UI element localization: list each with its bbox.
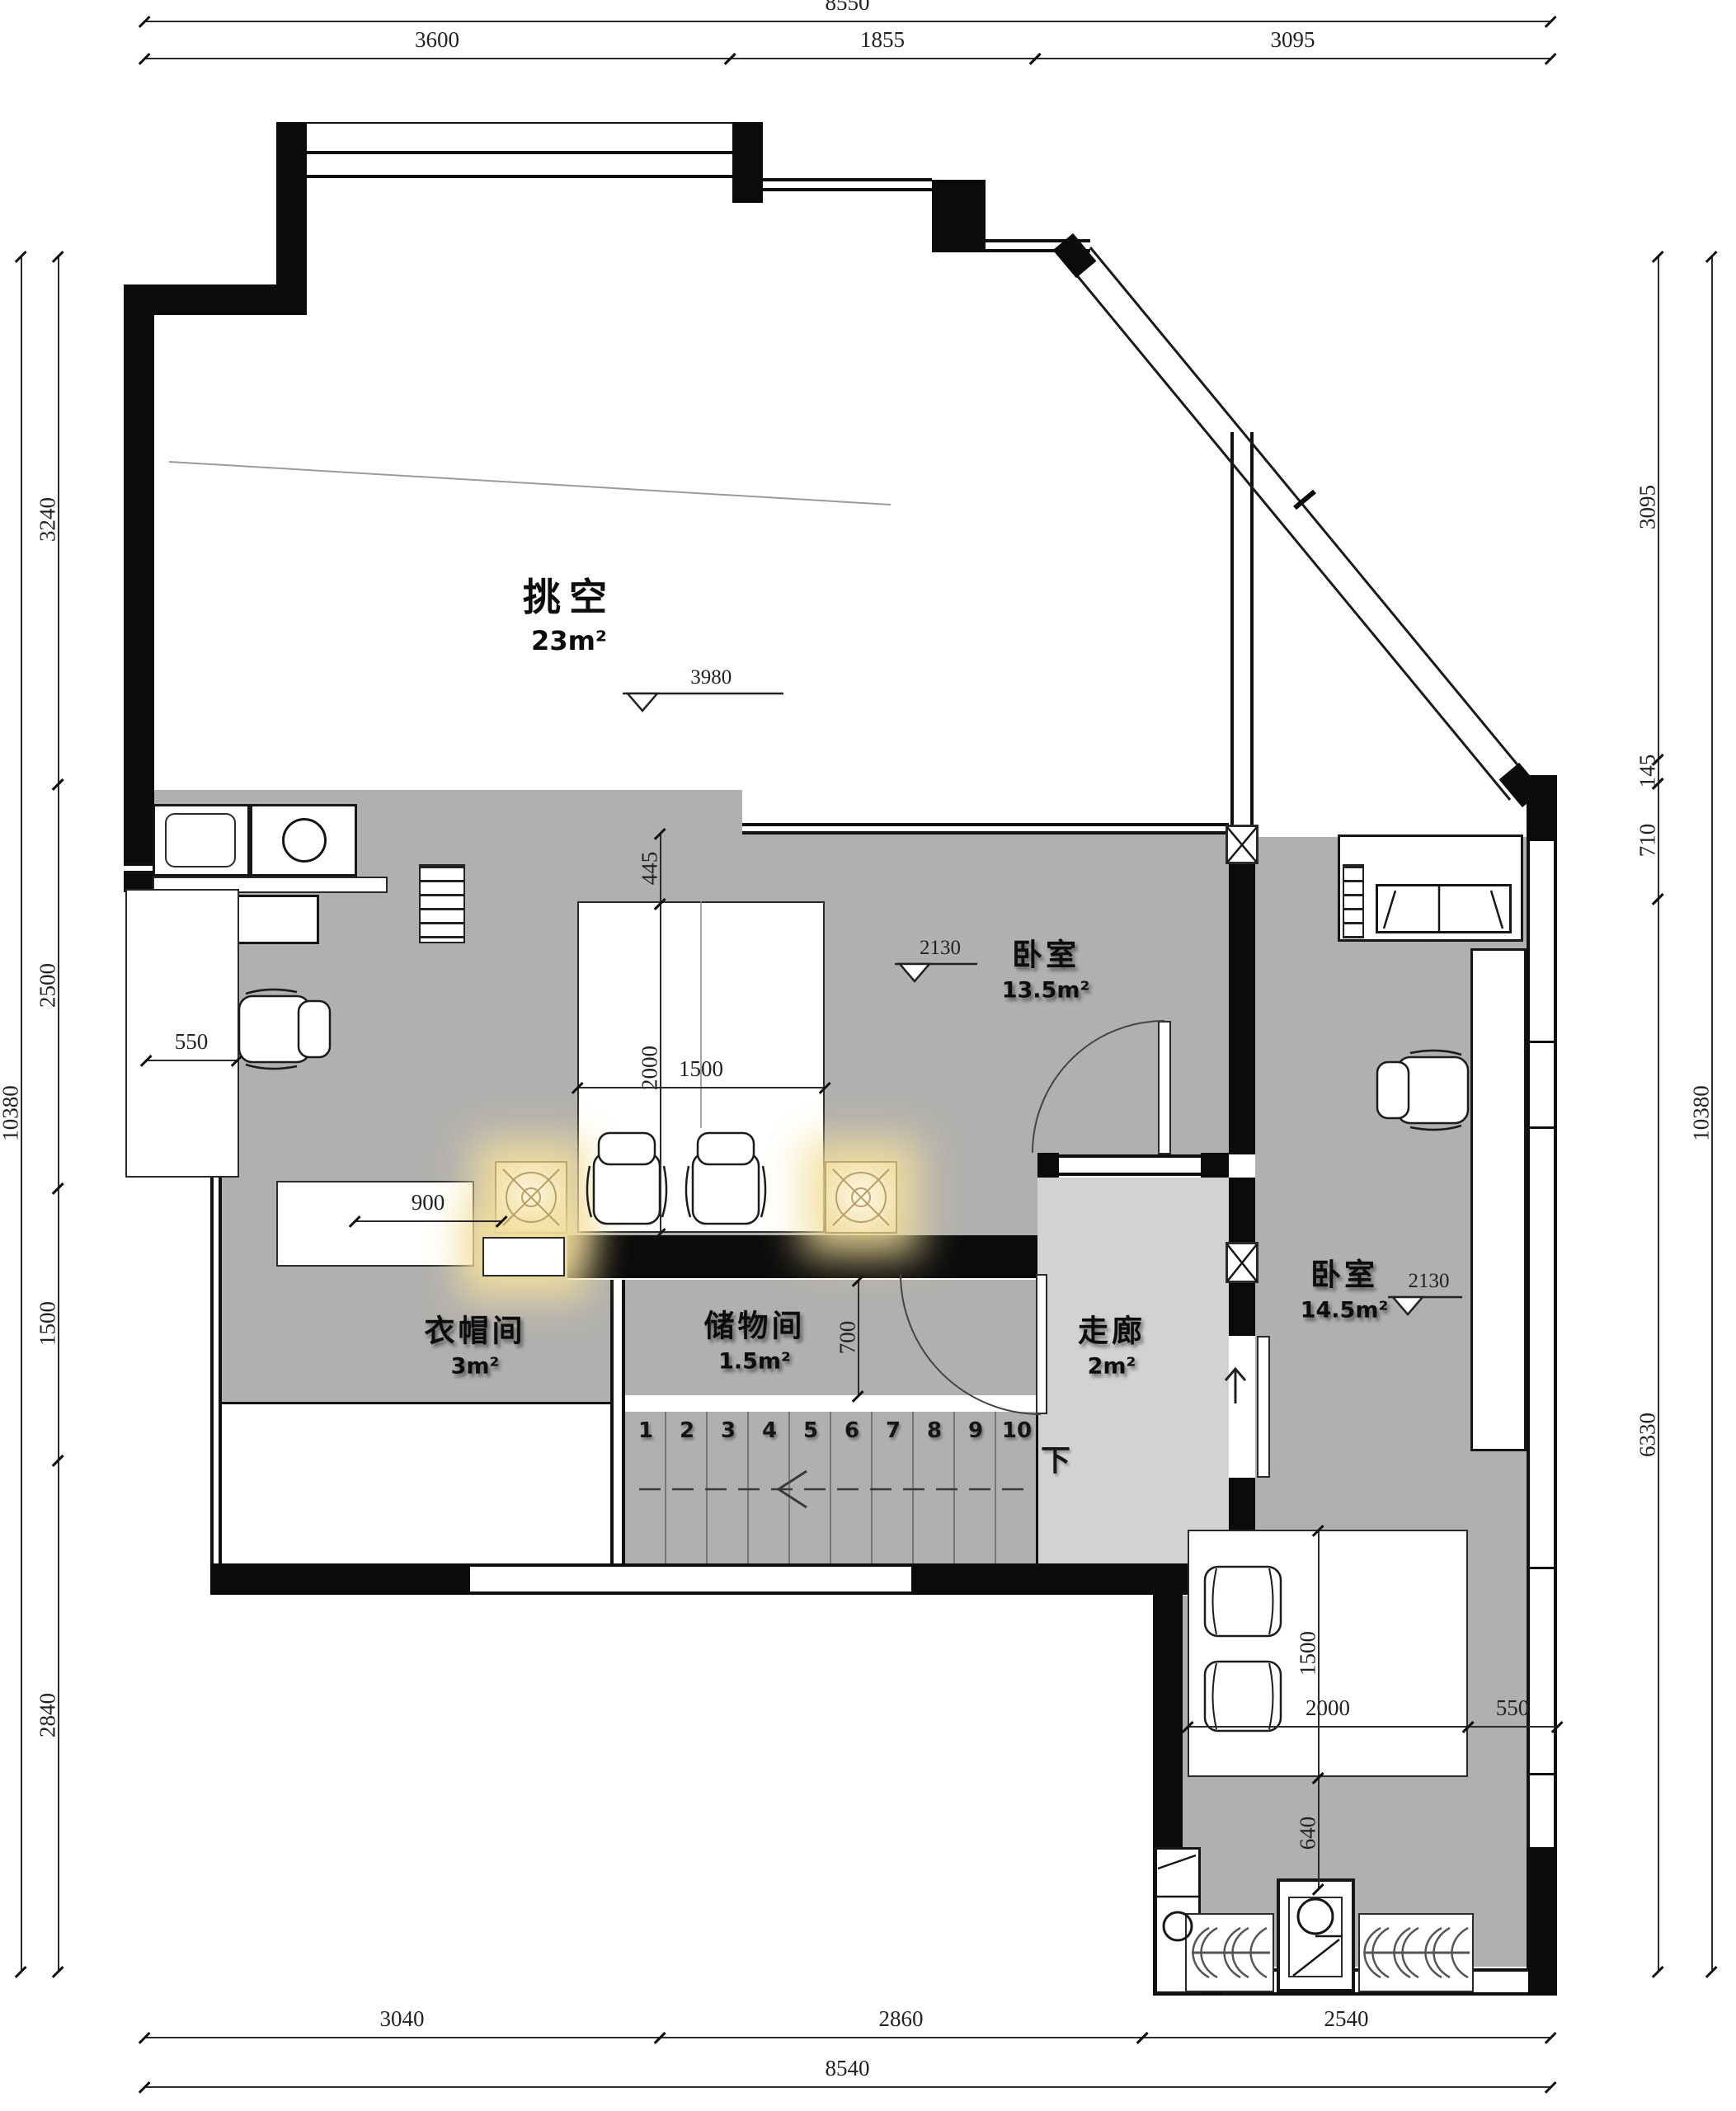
wall	[276, 124, 307, 315]
room-label: 走廊2m²	[1078, 1306, 1146, 1380]
wall	[1230, 432, 1254, 826]
column	[1226, 825, 1258, 864]
dimension-label: 640	[1296, 1816, 1321, 1850]
stair-number: 3	[721, 1418, 736, 1443]
ceiling-light	[825, 1161, 897, 1234]
dimension-line	[1188, 1726, 1468, 1728]
elevation-value: 2130	[920, 937, 961, 960]
nightstand	[482, 1237, 565, 1276]
dresser-inner	[1288, 1897, 1343, 1977]
room-label: 挑空23m²	[523, 567, 615, 656]
door-leaf	[1158, 1021, 1171, 1154]
dimension-line	[144, 2037, 660, 2038]
window-mullion	[1527, 1773, 1557, 1775]
bay-window	[307, 175, 732, 178]
ceiling-light	[495, 1161, 567, 1234]
wall	[1201, 1153, 1229, 1178]
elevation-marker: 2130	[1388, 1272, 1462, 1318]
room-label: 储物间1.5m²	[704, 1301, 806, 1375]
stair-number: 1	[638, 1418, 653, 1443]
elevation-marker: 3980	[623, 668, 783, 714]
dimension-label: 2540	[1324, 2006, 1369, 2032]
cabinet	[237, 895, 319, 944]
window-mullion	[1527, 1041, 1557, 1043]
dimension-line	[355, 1220, 501, 1222]
dimension-label: 2500	[35, 963, 61, 1008]
dimension-label: 1855	[860, 27, 905, 53]
dimension-label: 2860	[879, 2006, 924, 2032]
wardrobe-section	[1358, 1913, 1474, 1992]
dimension-label: 2000	[637, 1046, 663, 1090]
stair-number: 7	[886, 1418, 901, 1443]
wall	[932, 180, 986, 252]
dimension-label: 8550	[826, 0, 870, 16]
dimension-label: 2840	[35, 1693, 61, 1737]
dimension-label: 445	[637, 851, 663, 885]
bay-edge	[276, 122, 763, 124]
elevation-value: 3980	[690, 666, 732, 689]
stair-number: 9	[968, 1418, 983, 1443]
desk	[1470, 948, 1527, 1451]
dimension-label: 3240	[35, 497, 61, 542]
dimension-label: 6330	[1635, 1413, 1661, 1457]
wall-line	[221, 1402, 610, 1404]
dimension-label: 8540	[826, 2056, 870, 2081]
dimension-label: 3095	[1635, 485, 1661, 529]
cloakroom-floor	[221, 1280, 610, 1403]
wall	[124, 284, 154, 892]
room-area: 2m²	[1078, 1354, 1146, 1380]
wall	[1229, 864, 1255, 1154]
room-area: 13.5m²	[1002, 978, 1090, 1004]
wardrobe-section	[1185, 1913, 1274, 1992]
radiator-grille	[419, 864, 465, 943]
dimension-label: 3040	[380, 2006, 425, 2032]
dimension-label: 2000	[1306, 1695, 1350, 1721]
wall	[1059, 1154, 1201, 1176]
dimension-label: 10380	[0, 1085, 24, 1141]
room-name: 挑空	[523, 567, 615, 622]
room-name: 走廊	[1078, 1306, 1146, 1351]
dimension-label: 900	[412, 1190, 445, 1215]
low-window-sill	[742, 823, 1229, 835]
washer-drum	[282, 818, 327, 863]
wall	[1527, 775, 1557, 841]
room-area: 14.5m²	[1301, 1298, 1389, 1323]
door-leaf	[1257, 1336, 1270, 1478]
column	[1226, 1242, 1258, 1283]
dimension-line	[577, 1087, 825, 1088]
stairs-down-label: 下	[1041, 1436, 1070, 1479]
dimension-line	[144, 58, 730, 59]
room-name: 衣帽间	[425, 1306, 526, 1351]
room-label: 卧室14.5m²	[1301, 1250, 1389, 1323]
wall	[986, 239, 1090, 252]
storage-floor	[625, 1280, 1037, 1395]
bed-feature-wall	[567, 1235, 1037, 1278]
radiator-grille	[1343, 864, 1364, 938]
bay-window	[307, 151, 732, 154]
door-leaf	[1036, 1274, 1047, 1414]
dimension-label: 1500	[35, 1301, 61, 1346]
dimension-line	[144, 21, 1550, 22]
stair-number: 6	[844, 1418, 859, 1443]
dimension-line	[144, 2086, 1550, 2088]
room-label: 衣帽间3m²	[425, 1306, 526, 1380]
dimension-label: 10380	[1689, 1085, 1715, 1141]
stair-number: 8	[927, 1418, 942, 1443]
tv-screen	[1376, 884, 1512, 933]
dimension-label: 550	[175, 1029, 209, 1055]
dimension-label: 710	[1635, 824, 1661, 858]
elevation-value: 2130	[1409, 1270, 1450, 1293]
dimension-label: 3600	[415, 27, 459, 53]
window-wall	[1527, 775, 1557, 1989]
dimension-line	[1468, 1726, 1557, 1728]
wall	[732, 124, 763, 203]
dimension-label: 1500	[679, 1056, 723, 1082]
dimension-label: 700	[835, 1321, 861, 1355]
room-name: 储物间	[704, 1301, 806, 1346]
floor-plan: 8550360018553095304028602540854010380324…	[0, 0, 1736, 2111]
stair-number: 2	[680, 1418, 694, 1443]
wall	[911, 1563, 1229, 1595]
dimension-label: 3095	[1271, 27, 1315, 53]
room-name: 卧室	[1002, 930, 1090, 975]
dimension-line	[730, 58, 1035, 59]
wall	[610, 1280, 625, 1563]
stair-number: 10	[1002, 1418, 1032, 1443]
dimension-line	[1142, 2037, 1550, 2038]
stair-number: 4	[762, 1418, 777, 1443]
room-label: 卧室13.5m²	[1002, 930, 1090, 1004]
bed	[1188, 1530, 1468, 1777]
wall	[210, 1563, 470, 1595]
wall	[1037, 1153, 1059, 1178]
dimension-line	[1035, 58, 1550, 59]
elevation-marker: 2130	[895, 938, 977, 985]
room-area: 1.5m²	[704, 1349, 806, 1375]
dimension-line	[660, 2037, 1142, 2038]
window-mullion	[1527, 1567, 1557, 1569]
room-name: 卧室	[1301, 1250, 1389, 1295]
window-mullion	[1527, 1126, 1557, 1129]
dimension-label: 550	[1496, 1695, 1530, 1721]
dimension-label: 1500	[1296, 1631, 1321, 1676]
room-area: 3m²	[425, 1354, 526, 1380]
dimension-line	[146, 1060, 237, 1061]
room-area: 23m²	[523, 625, 615, 656]
stair-number: 5	[803, 1418, 818, 1443]
wall	[1527, 1847, 1557, 1996]
window-wall	[470, 1563, 911, 1595]
sink-basin	[165, 813, 236, 867]
wall	[763, 178, 932, 191]
